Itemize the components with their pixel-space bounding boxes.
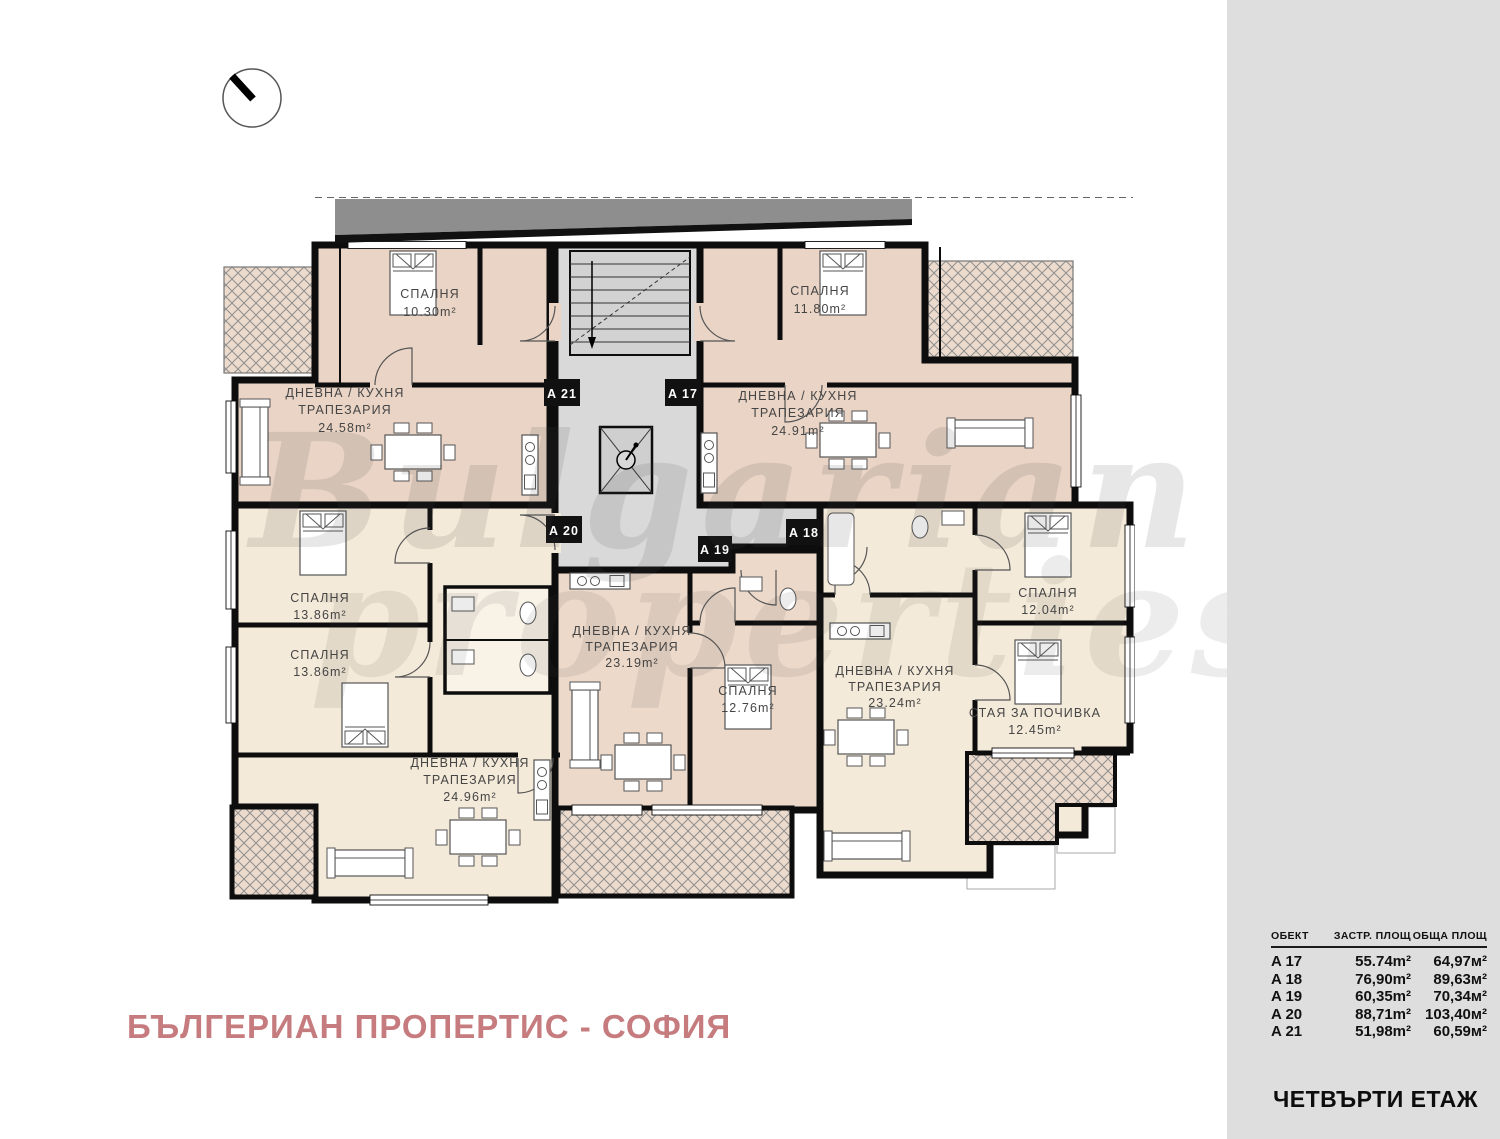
company-title: БЪЛГЕРИАН ПРОПЕРТИС - СОФИЯ [127, 1008, 731, 1046]
row-built: 76,90m² [1323, 971, 1411, 989]
room-label-a21-bedroom: СПАЛНЯ [400, 287, 459, 301]
row-total: 103,40м² [1411, 1006, 1487, 1024]
unit-label-a19: A 19 [700, 543, 730, 557]
room-label-a17-living-2: ТРАПЕЗАРИЯ [751, 406, 845, 420]
room-area-a21-living: 24.58m² [318, 421, 372, 435]
room-area-a20-bedroom2: 13.86m² [293, 665, 347, 679]
room-label-a19-living-1: ДНЕВНА / КУХНЯ [572, 624, 691, 638]
row-total: 64,97м² [1411, 953, 1487, 971]
floor-title: ЧЕТВЪРТИ ЕТАЖ [1273, 1086, 1478, 1113]
room-label-a21-living-1: ДНЕВНА / КУХНЯ [285, 386, 404, 400]
room-label-a20-bedroom1: СПАЛНЯ [290, 591, 349, 605]
table-row: A 19 60,35m² 70,34м² [1271, 988, 1487, 1006]
room-area-a19-bedroom: 12.76m² [721, 701, 775, 715]
floor-plan: A 21 A 17 A 20 A 19 A 18 СПАЛНЯ 10.30m² … [220, 195, 1135, 907]
terrace-a21-left [224, 267, 316, 373]
legend-header-built: ЗАСТР. ПЛОЩ [1323, 930, 1411, 942]
room-label-a20-bedroom2: СПАЛНЯ [290, 648, 349, 662]
unit-label-a20: A 20 [549, 524, 579, 538]
row-total: 89,63м² [1411, 971, 1487, 989]
room-area-a21-bedroom: 10.30m² [403, 305, 457, 319]
table-row: A 21 51,98m² 60,59м² [1271, 1023, 1487, 1041]
room-area-a17-living: 24.91m² [771, 424, 825, 438]
row-unit: A 17 [1271, 953, 1323, 971]
row-built: 60,35m² [1323, 988, 1411, 1006]
room-label-a19-living-2: ТРАПЕЗАРИЯ [585, 640, 679, 654]
row-built: 88,71m² [1323, 1006, 1411, 1024]
row-built: 51,98m² [1323, 1023, 1411, 1041]
room-label-a19-bedroom: СПАЛНЯ [718, 684, 777, 698]
room-label-a20-living-1: ДНЕВНА / КУХНЯ [410, 756, 529, 770]
room-area-a20-bedroom1: 13.86m² [293, 608, 347, 622]
row-unit: A 18 [1271, 971, 1323, 989]
room-area-a19-living: 23.19m² [605, 656, 659, 670]
terrace-a19 [558, 808, 792, 896]
area-legend-table: ОБЕКТ ЗАСТР. ПЛОЩ ОБЩА ПЛОЩ A 17 55.74m²… [1271, 930, 1487, 1041]
room-label-a18-living-1: ДНЕВНА / КУХНЯ [835, 664, 954, 678]
row-unit: A 19 [1271, 988, 1323, 1006]
room-area-a18-rest: 12.45m² [1008, 723, 1062, 737]
page: { "watermark": { "line1": "Bulgarian", "… [0, 0, 1500, 1139]
row-unit: A 21 [1271, 1023, 1323, 1041]
room-area-a17-bedroom: 11.80m² [794, 302, 847, 316]
room-label-a21-living-2: ТРАПЕЗАРИЯ [298, 403, 392, 417]
legend-header-total: ОБЩА ПЛОЩ [1411, 930, 1487, 942]
terrace-a17-topright [928, 261, 1073, 357]
sidebar: ОБЕКТ ЗАСТР. ПЛОЩ ОБЩА ПЛОЩ A 17 55.74m²… [1227, 0, 1500, 1139]
room-label-a18-living-2: ТРАПЕЗАРИЯ [848, 680, 942, 694]
staircase [570, 251, 690, 355]
room-label-a18-rest: СТАЯ ЗА ПОЧИВКА [969, 706, 1101, 720]
floor-plan-drawing: A 21 A 17 A 20 A 19 A 18 СПАЛНЯ 10.30m² … [220, 195, 1135, 907]
table-row: A 18 76,90m² 89,63м² [1271, 971, 1487, 989]
room-label-a18-bedroom: СПАЛНЯ [1018, 586, 1077, 600]
row-total: 70,34м² [1411, 988, 1487, 1006]
row-built: 55.74m² [1323, 953, 1411, 971]
room-label-a20-living-2: ТРАПЕЗАРИЯ [423, 773, 517, 787]
room-area-a18-bedroom: 12.04m² [1021, 603, 1075, 617]
terrace-a20 [232, 807, 316, 897]
legend-header-unit: ОБЕКТ [1271, 930, 1323, 942]
unit-label-a17: A 17 [668, 387, 698, 401]
legend-header-row: ОБЕКТ ЗАСТР. ПЛОЩ ОБЩА ПЛОЩ [1271, 930, 1487, 948]
roof-overhang [335, 199, 912, 243]
row-unit: A 20 [1271, 1006, 1323, 1024]
room-area-a20-living: 24.96m² [443, 790, 497, 804]
table-row: A 17 55.74m² 64,97м² [1271, 953, 1487, 971]
table-row: A 20 88,71m² 103,40м² [1271, 1006, 1487, 1024]
elevator [600, 427, 652, 493]
north-arrow-compass [220, 66, 284, 130]
unit-label-a21: A 21 [547, 387, 577, 401]
room-label-a17-living-1: ДНЕВНА / КУХНЯ [738, 389, 857, 403]
room-area-a18-living: 23.24m² [868, 696, 922, 710]
room-label-a17-bedroom: СПАЛНЯ [790, 284, 849, 298]
row-total: 60,59м² [1411, 1023, 1487, 1041]
unit-label-a18: A 18 [789, 526, 819, 540]
